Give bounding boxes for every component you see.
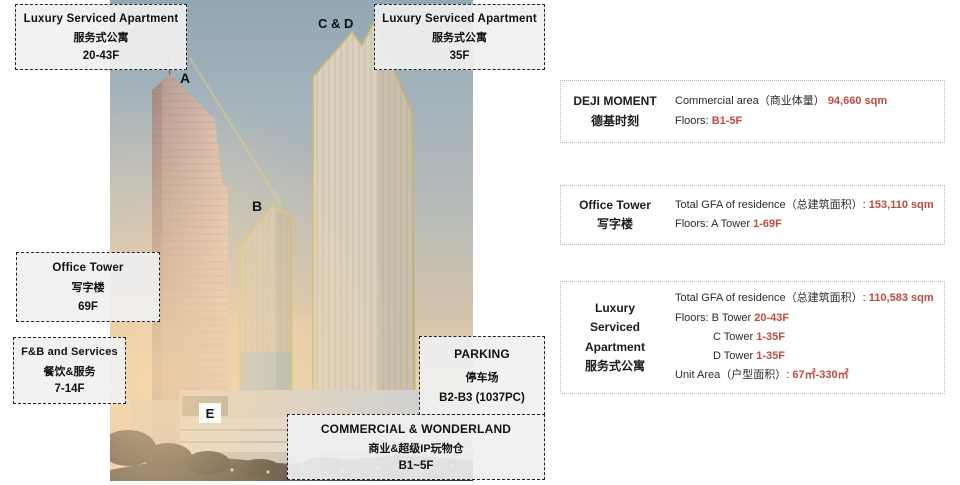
callout-line: PARKING	[454, 347, 510, 361]
tower-label-b: B	[252, 198, 262, 214]
callout-apartment-cd: Luxury Serviced Apartment 服务式公寓 35F	[374, 4, 545, 70]
info-row-details: Commercial area（商业体量） 94,660 sqm Floors:…	[669, 92, 944, 131]
tower-label-e: E	[199, 403, 221, 423]
tower-label-cd: C & D	[318, 16, 353, 31]
detail-line: Unit Area（户型面积）: 67㎡-330㎡	[675, 366, 940, 385]
tower-label-e-text: E	[206, 406, 215, 421]
info-row-deji-moment: DEJI MOMENT 德基时刻 Commercial area（商业体量） 9…	[560, 80, 945, 143]
detail-value: 1-69F	[753, 218, 782, 230]
callout-commercial: COMMERCIAL & WONDERLAND 商业&超级IP玩物仓 B1~5F	[287, 414, 545, 480]
info-row-details: Total GFA of residence（总建筑面积）: 110,583 s…	[669, 289, 944, 385]
detail-line: Total GFA of residence（总建筑面积）: 110,583 s…	[675, 289, 940, 308]
detail-value: 67㎡-330㎡	[792, 369, 848, 381]
detail-text: Floors: B Tower	[675, 312, 754, 324]
callout-line: 35F	[450, 50, 470, 62]
callout-parking: PARKING 停车场 B2-B3 (1037PC)	[419, 336, 545, 415]
detail-text: Unit Area（户型面积）:	[675, 369, 792, 381]
title-line: Office Tower	[561, 196, 669, 215]
callout-line: 写字楼	[72, 279, 105, 295]
detail-text: D Tower	[713, 350, 756, 362]
callout-line: 停车场	[466, 369, 499, 385]
detail-text: Floors:	[675, 115, 712, 127]
info-row-luxury-apartment: Luxury Serviced Apartment 服务式公寓 Total GF…	[560, 281, 945, 394]
info-row-title: Office Tower 写字楼	[561, 196, 669, 234]
detail-text: Total GFA of residence（总建筑面积）:	[675, 199, 869, 211]
callout-line: Luxury Serviced Apartment	[382, 13, 537, 25]
callout-line: 服务式公寓	[74, 29, 129, 45]
detail-value: 1-35F	[756, 350, 785, 362]
detail-text: C Tower	[713, 331, 756, 343]
info-row-office-tower: Office Tower 写字楼 Total GFA of residence（…	[560, 185, 945, 245]
callout-line: 7-14F	[54, 383, 84, 395]
callout-line: F&B and Services	[21, 346, 118, 358]
callout-line: Office Tower	[52, 262, 123, 274]
callout-line: COMMERCIAL & WONDERLAND	[321, 422, 511, 436]
detail-line: Floors: B Tower 20-43F	[675, 309, 940, 328]
callout-line: 20-43F	[83, 50, 119, 62]
detail-value: 94,660 sqm	[828, 95, 887, 107]
detail-value: 153,110 sqm	[869, 199, 934, 211]
title-line: Serviced	[561, 318, 669, 337]
callout-apartment-a: Luxury Serviced Apartment 服务式公寓 20-43F	[15, 4, 187, 70]
detail-line: C Tower 1-35F	[675, 328, 940, 347]
callout-line: 69F	[78, 301, 98, 313]
detail-value: 20-43F	[754, 312, 789, 324]
callout-line: 商业&超级IP玩物仓	[368, 440, 463, 456]
detail-value: 1-35F	[756, 331, 785, 343]
detail-line: Floors: B1-5F	[675, 112, 940, 131]
detail-line: Floors: A Tower 1-69F	[675, 215, 940, 234]
detail-value: 110,583 sqm	[869, 292, 934, 304]
slide: A B C & D E Luxury Serviced Apartment 服务…	[0, 0, 960, 485]
detail-text: Floors: A Tower	[675, 218, 753, 230]
callout-line: Luxury Serviced Apartment	[24, 13, 179, 25]
title-line: 德基时刻	[561, 112, 669, 131]
info-row-title: DEJI MOMENT 德基时刻	[561, 92, 669, 130]
detail-text: Commercial area（商业体量）	[675, 95, 828, 107]
title-line: Luxury	[561, 299, 669, 318]
detail-value: B1-5F	[712, 115, 743, 127]
callout-line: B1~5F	[399, 460, 434, 472]
info-row-title: Luxury Serviced Apartment 服务式公寓	[561, 299, 669, 376]
info-row-details: Total GFA of residence（总建筑面积）: 153,110 s…	[669, 196, 944, 235]
detail-text: Total GFA of residence（总建筑面积）:	[675, 292, 869, 304]
detail-line: Total GFA of residence（总建筑面积）: 153,110 s…	[675, 196, 940, 215]
title-line: 写字楼	[561, 215, 669, 234]
callout-fb-services: F&B and Services 餐饮&服务 7-14F	[13, 337, 126, 404]
detail-line: Commercial area（商业体量） 94,660 sqm	[675, 92, 940, 111]
title-line: DEJI MOMENT	[561, 92, 669, 111]
callout-line: B2-B3 (1037PC)	[439, 392, 525, 404]
title-line: 服务式公寓	[561, 357, 669, 376]
callout-office-tower: Office Tower 写字楼 69F	[16, 252, 160, 322]
callout-line: 餐饮&服务	[44, 363, 96, 379]
tower-label-a: A	[180, 70, 190, 86]
title-line: Apartment	[561, 338, 669, 357]
callout-line: 服务式公寓	[432, 29, 487, 45]
detail-line: D Tower 1-35F	[675, 347, 940, 366]
